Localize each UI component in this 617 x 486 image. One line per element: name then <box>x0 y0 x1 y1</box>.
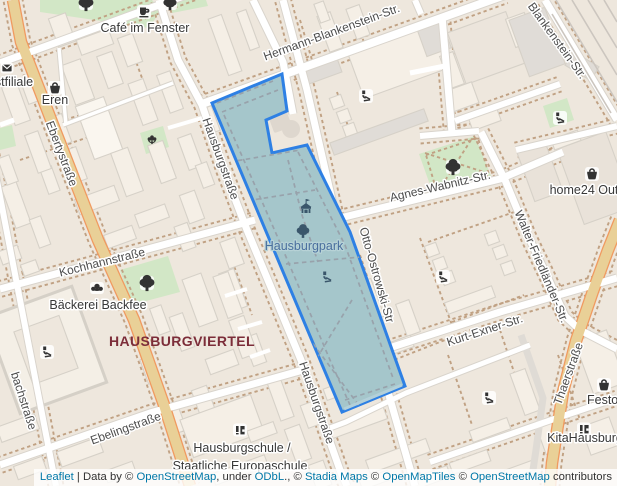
svg-text:HAUSBURGVIERTEL: HAUSBURGVIERTEL <box>109 333 255 349</box>
svg-text:home24 Out: home24 Out <box>550 183 617 197</box>
svg-text:Bäckerei Backfee: Bäckerei Backfee <box>49 298 146 312</box>
svg-text:stfiliale: stfiliale <box>0 75 33 89</box>
svg-text:KitaHausburg: KitaHausburg <box>547 431 617 445</box>
svg-text:Festock: Festock <box>587 393 617 407</box>
svg-text:Hausburgschule /: Hausburgschule / <box>193 441 291 455</box>
svg-text:Eren: Eren <box>42 93 68 107</box>
svg-text:Hausburgpark: Hausburgpark <box>265 239 344 253</box>
svg-text:Café im Fenster: Café im Fenster <box>101 21 190 35</box>
